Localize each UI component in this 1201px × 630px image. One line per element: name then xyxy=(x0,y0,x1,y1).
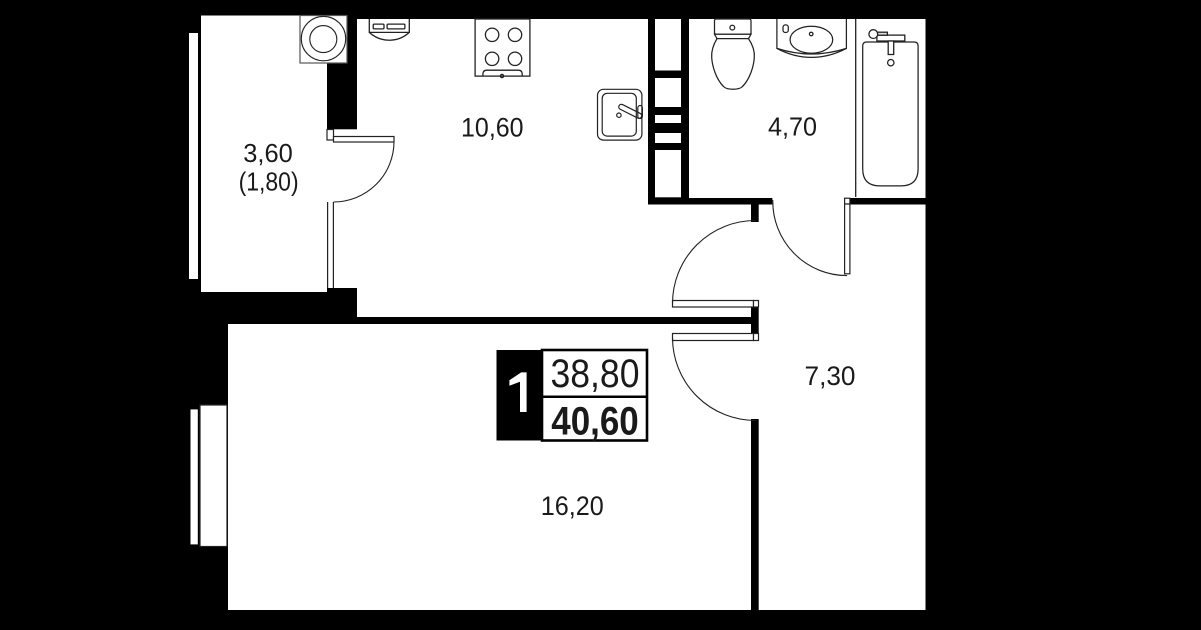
svg-text:3,60: 3,60 xyxy=(243,138,293,168)
svg-text:10,60: 10,60 xyxy=(461,113,524,143)
svg-text:16,20: 16,20 xyxy=(541,491,604,521)
svg-text:38,80: 38,80 xyxy=(551,352,640,396)
svg-text:40,60: 40,60 xyxy=(551,400,639,444)
svg-text:(1,80): (1,80) xyxy=(239,167,299,197)
svg-text:7,30: 7,30 xyxy=(805,361,856,391)
svg-text:4,70: 4,70 xyxy=(768,111,817,141)
